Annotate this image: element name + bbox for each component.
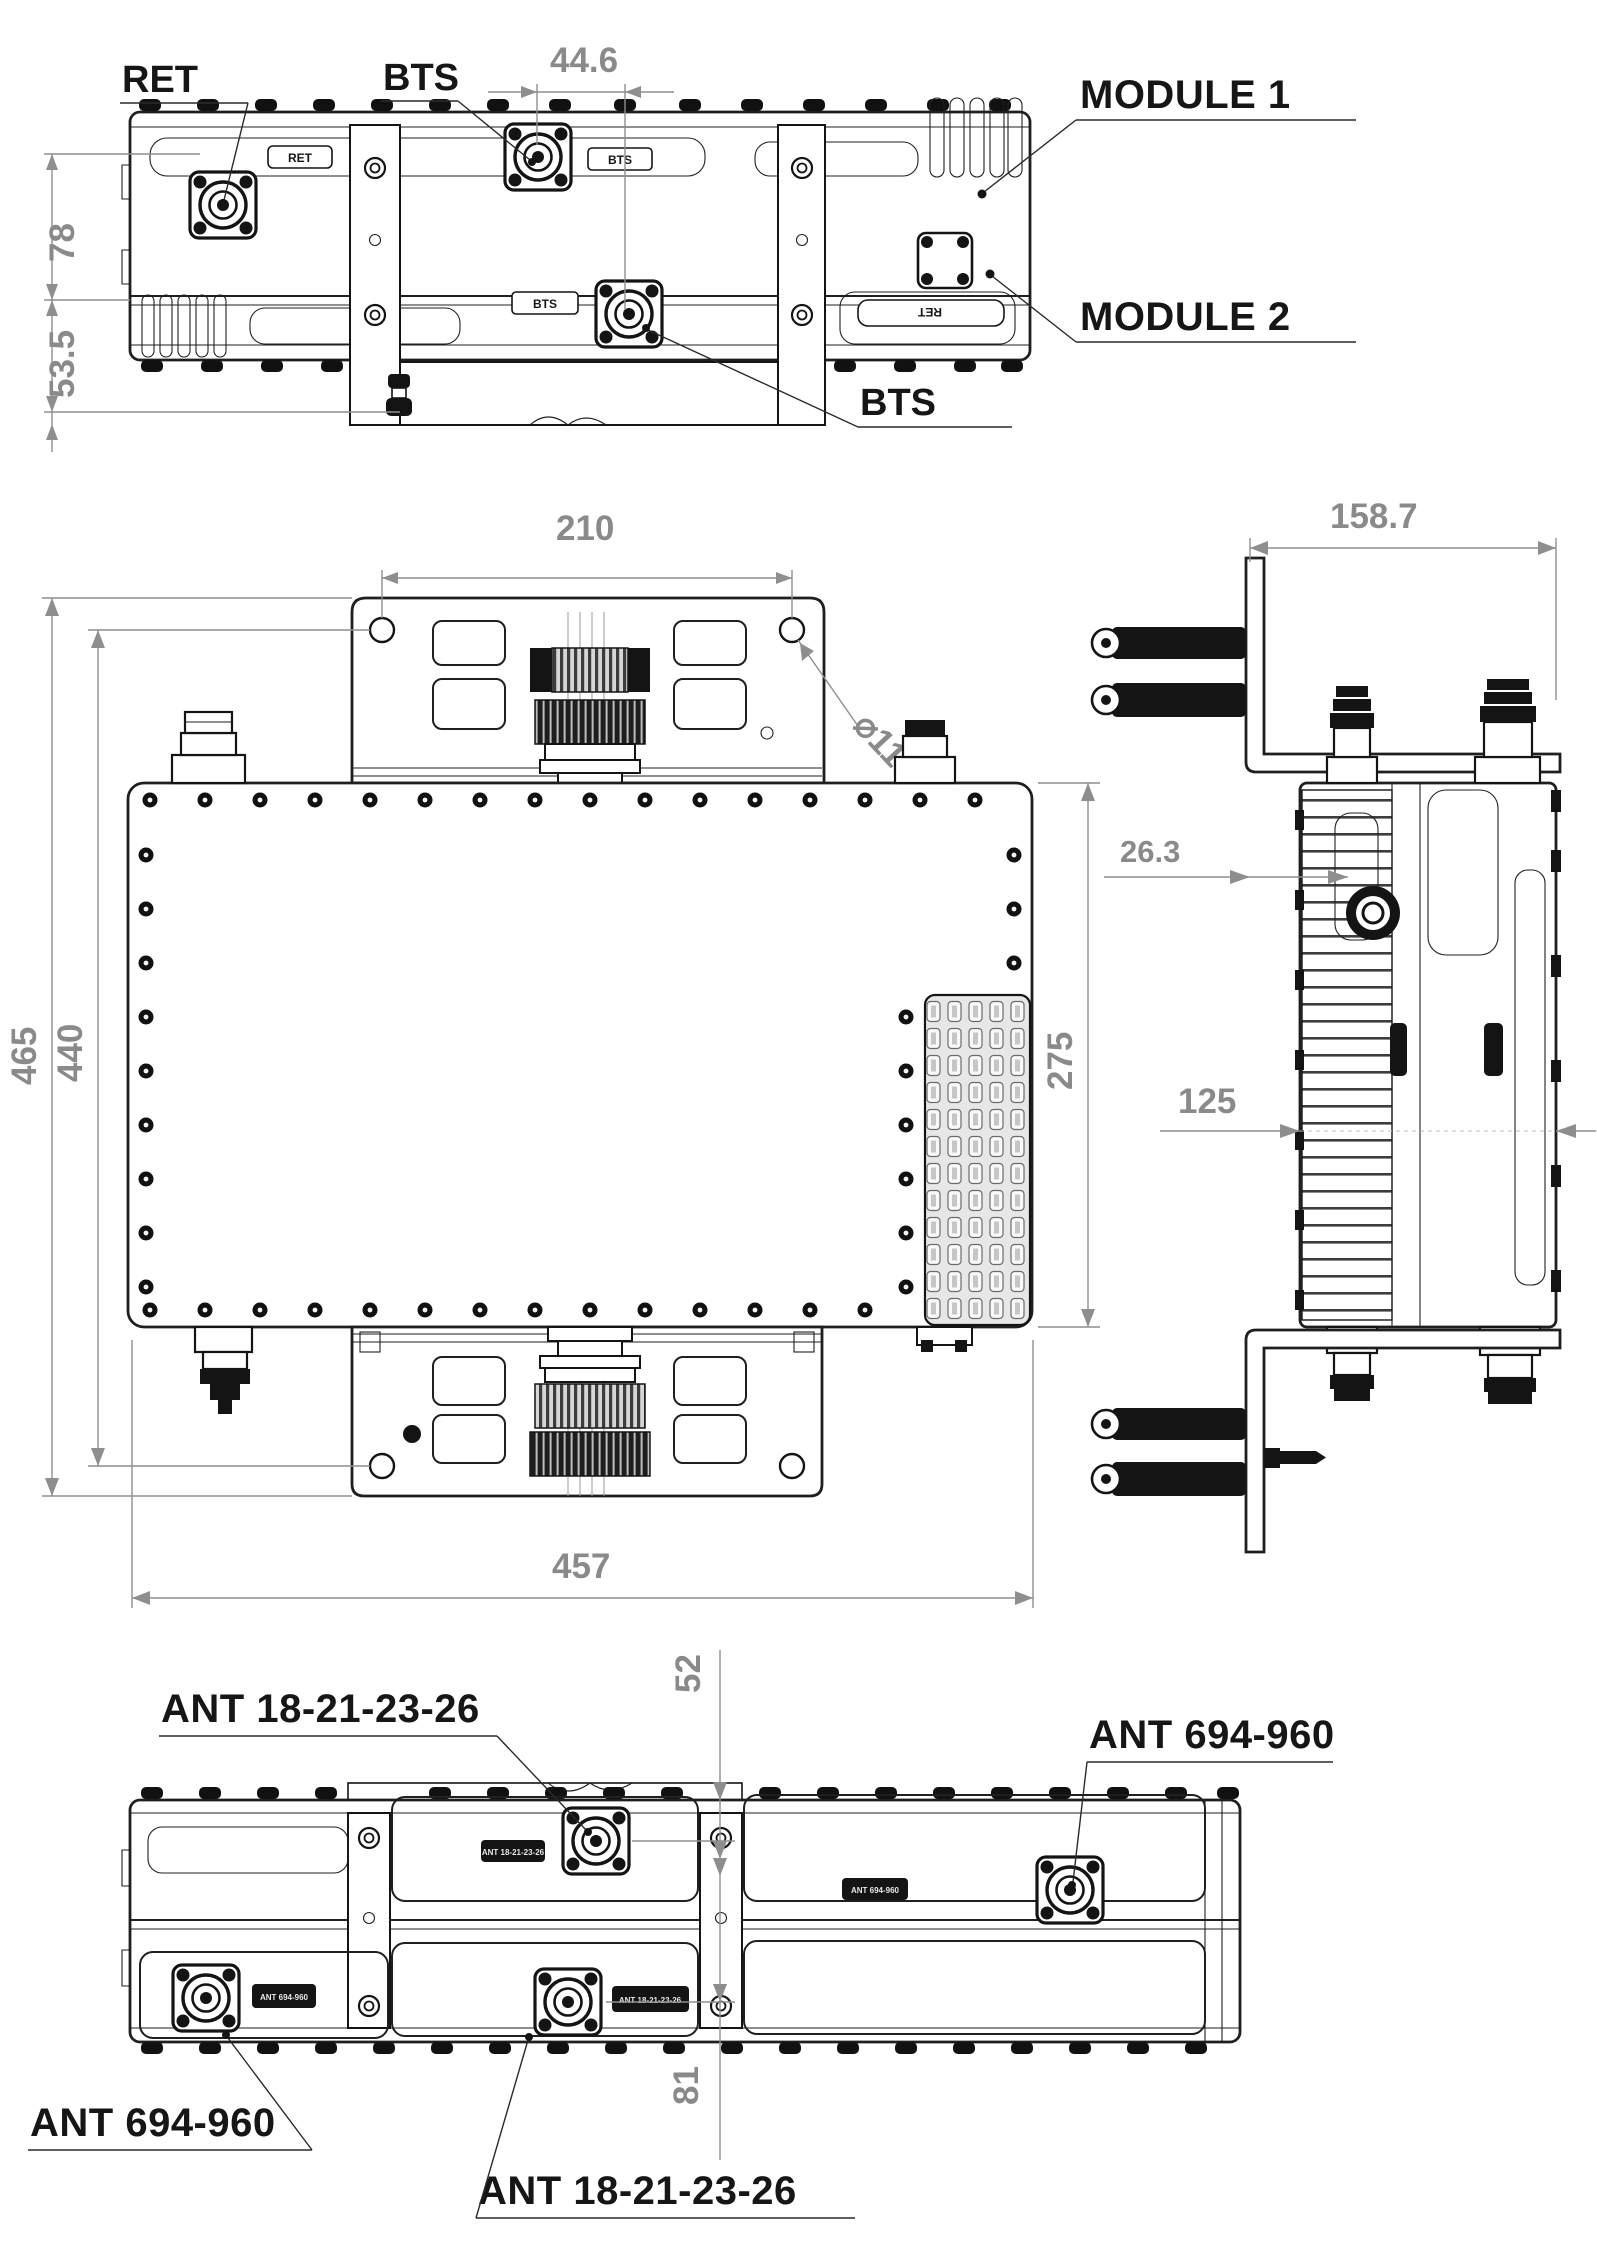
side-view-knob (1346, 886, 1400, 940)
drawing-sheet: RET RET BTS BTS (0, 0, 1597, 2247)
dim-457-text: 457 (552, 1547, 610, 1586)
dim-158-7: 158.7 (1250, 497, 1556, 700)
ant-low-right-connector (1037, 1857, 1103, 1923)
ant-plate-lower-left-text: ANT 694-960 (260, 1993, 309, 2002)
bts-lower-plate: BTS (512, 292, 578, 314)
dim-210-text: 210 (556, 509, 614, 548)
ant-plate-lower-mid: ANT 18-21-23-26 (612, 1986, 689, 2012)
front-top-left-port (172, 712, 245, 783)
bottom-view: ANT 18-21-23-26 ANT 694-960 ANT 694-960 … (28, 1650, 1335, 2218)
ant-plate-upper-mid-text: ANT 18-21-23-26 (482, 1848, 545, 1857)
bts-upper-callout: BTS (383, 57, 459, 99)
dim-465-text: 465 (5, 1027, 44, 1085)
dim-275-text: 275 (1041, 1032, 1080, 1090)
ant-plate-lower-left: ANT 694-960 (252, 1984, 316, 2008)
ant-low-right-callout: ANT 694-960 (1089, 1713, 1335, 1757)
ret-left-plate: RET (268, 146, 332, 168)
bts-lower-engraving: BTS (533, 297, 557, 311)
side-bottom-clamps (1092, 1408, 1246, 1496)
ant-high-upper-callout: ANT 18-21-23-26 (161, 1687, 480, 1731)
module2-callout: MODULE 2 (1080, 295, 1291, 339)
front-top-right-port (895, 720, 955, 783)
dim-44-6-text: 44.6 (550, 41, 618, 80)
top-view-top-screws (139, 99, 1011, 111)
ant-plate-lower-mid-text: ANT 18-21-23-26 (619, 1996, 682, 2005)
ant-low-left-connector (173, 1965, 239, 2031)
front-view-body (128, 783, 1032, 1327)
ant-high-upper-connector (563, 1808, 629, 1874)
ant-high-lower-callout: ANT 18-21-23-26 (478, 2169, 797, 2213)
dim-81-text: 81 (667, 2066, 706, 2105)
ant-low-left-callout: ANT 694-960 (30, 2101, 276, 2145)
bts-upper-plate: BTS (588, 148, 652, 170)
bts-lower-connector (596, 281, 662, 347)
front-bottom-left-port (195, 1327, 252, 1414)
ant-plate-right: ANT 694-960 (842, 1878, 908, 1900)
top-view: RET RET BTS BTS (43, 41, 1356, 452)
bts-upper-connector (505, 124, 571, 190)
dim-52-text: 52 (669, 1654, 708, 1693)
side-top-clamps (1092, 627, 1246, 717)
ret-right-plate: RET (858, 300, 1004, 326)
ant-plate-upper-mid: ANT 18-21-23-26 (481, 1840, 545, 1862)
dim-275: 275 (1038, 783, 1100, 1327)
side-bracket-bolt (1264, 1448, 1326, 1468)
module2-flange (918, 233, 972, 288)
bts-lower-callout: BTS (860, 382, 936, 424)
ant-high-lower-connector (535, 1969, 601, 2035)
dim-440-text: 440 (51, 1024, 90, 1082)
ret-left-engraving: RET (288, 151, 313, 165)
dim-26-3-text: 26.3 (1120, 834, 1180, 869)
dim-78-text: 78 (43, 223, 82, 262)
bts-upper-engraving: BTS (608, 153, 632, 167)
front-view-heatsink (925, 995, 1030, 1325)
cad-drawing: RET RET BTS BTS (0, 0, 1597, 2247)
front-bottom-bracket (352, 1327, 822, 1496)
ant-plate-right-text: ANT 694-960 (851, 1886, 900, 1895)
dim-125-text: 125 (1178, 1082, 1236, 1121)
module1-callout: MODULE 1 (1080, 73, 1291, 117)
dim-158-7-text: 158.7 (1330, 497, 1418, 536)
ret-right-engraving: RET (917, 305, 942, 319)
front-view: 210 ⌀11 (5, 509, 1100, 1608)
ret-callout: RET (122, 59, 198, 101)
bottom-view-bottom-screws (141, 2042, 1207, 2054)
front-top-bracket (352, 598, 824, 812)
front-bottom-right-tab (917, 1327, 972, 1352)
dim-53-5-text: 53.5 (43, 330, 82, 398)
side-view: 158.7 26.3 125 (1092, 497, 1596, 1552)
